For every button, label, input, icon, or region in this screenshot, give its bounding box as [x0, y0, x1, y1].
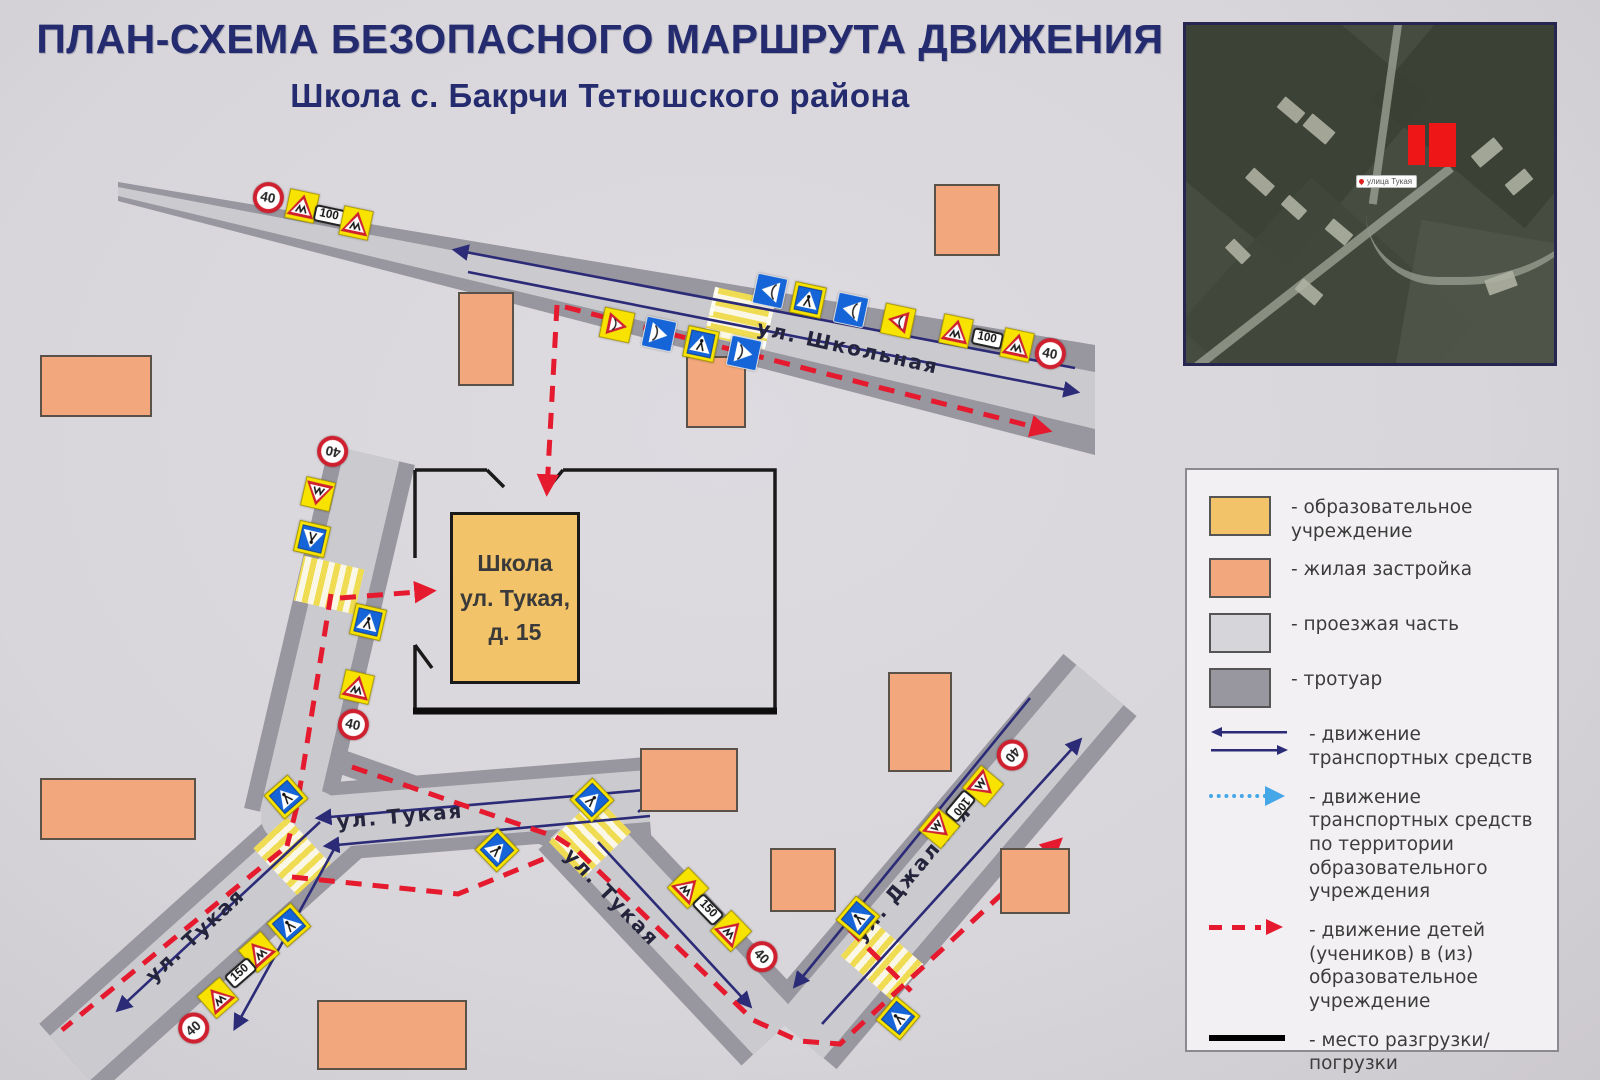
speed-limit-40-sign: 40 [249, 178, 287, 216]
map-pin-icon [1358, 178, 1365, 185]
satellite-inset: улица Тукая [1183, 22, 1557, 366]
page-subtitle: Школа с. Бакрчи Тетюшского района [30, 77, 1170, 115]
crossing-direction-sign [725, 334, 763, 372]
residential-building [888, 672, 952, 772]
residential-building [40, 778, 196, 840]
legend-label: - жилая застройка [1291, 558, 1529, 582]
legend-swatch-traffic-icon [1209, 723, 1289, 759]
legend-item-campus: - движение транспортных средств по терри… [1209, 786, 1539, 904]
inset-school-highlight [1429, 123, 1456, 167]
poster-title: ПЛАН-СХЕМА БЕЗОПАСНОГО МАРШРУТА ДВИЖЕНИЯ… [30, 16, 1170, 115]
inset-marker-label: улица Тукая [1356, 175, 1417, 188]
children-warning-sign [337, 204, 375, 242]
legend-swatch-side-icon [1209, 668, 1271, 708]
legend-item-road: - проезжая часть [1209, 613, 1539, 653]
children-warning-sign [998, 326, 1036, 364]
legend-item-edu: - образовательное учреждение [1209, 496, 1539, 543]
legend: - образовательное учреждение- жилая заст… [1185, 468, 1559, 1052]
residential-building [1000, 848, 1070, 914]
legend-label: - движение транспортных средств [1309, 723, 1539, 770]
residential-building [458, 292, 514, 386]
legend-swatch-road-icon [1209, 613, 1271, 653]
inset-school-highlight [1408, 125, 1425, 165]
legend-item-traffic: - движение транспортных средств [1209, 723, 1539, 770]
residential-building [640, 748, 738, 812]
legend-swatch-children-icon [1209, 919, 1289, 937]
school-building: Школа ул. Тукая, д. 15 [450, 512, 580, 684]
legend-swatch-campus-icon [1209, 786, 1289, 808]
crossing-direction-sign [640, 315, 678, 353]
residential-building [934, 184, 1000, 256]
school-street: ул. Тукая, [460, 581, 570, 616]
legend-swatch-res-icon [1209, 558, 1271, 598]
legend-item-res: - жилая застройка [1209, 558, 1539, 598]
speed-limit-40-sign: 40 [1031, 334, 1069, 372]
yield-sign [598, 306, 636, 344]
crossing-direction-sign [832, 291, 870, 329]
residential-building [40, 355, 152, 417]
legend-label: - движение детей (учеников) в (из) образ… [1309, 919, 1539, 1014]
school-name: Школа [477, 546, 552, 581]
legend-item-children: - движение детей (учеников) в (из) образ… [1209, 919, 1539, 1014]
legend-label: - движение транспортных средств по терри… [1309, 786, 1539, 904]
legend-label: - проезжая часть [1291, 613, 1529, 637]
legend-label: - место разгрузки/погрузки [1309, 1029, 1539, 1076]
legend-item-side: - тротуар [1209, 668, 1539, 708]
crossing-direction-sign [751, 272, 789, 310]
legend-label: - образовательное учреждение [1291, 496, 1529, 543]
pedestrian-crossing-sign [682, 325, 720, 363]
school-house: д. 15 [489, 615, 542, 650]
residential-building [317, 1000, 467, 1070]
yield-sign [879, 302, 917, 340]
legend-label: - тротуар [1291, 668, 1529, 692]
legend-item-loading: - место разгрузки/погрузки [1209, 1029, 1539, 1076]
pedestrian-crossing-sign [789, 281, 827, 319]
legend-swatch-edu-icon [1209, 496, 1271, 536]
residential-building [770, 848, 836, 912]
legend-swatch-loading-icon [1209, 1029, 1289, 1045]
page-title: ПЛАН-СХЕМА БЕЗОПАСНОГО МАРШРУТА ДВИЖЕНИЯ [30, 16, 1170, 63]
